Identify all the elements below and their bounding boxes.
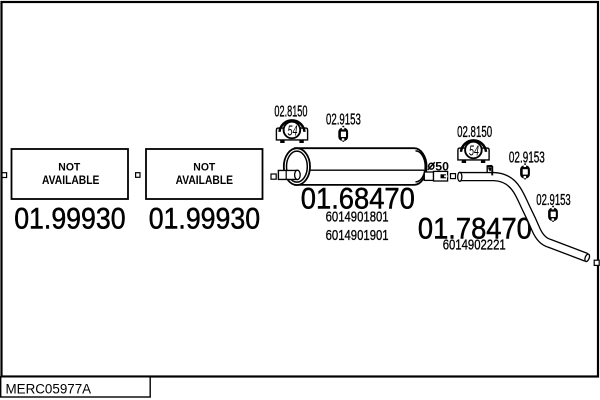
svg-text:50: 50 <box>435 159 449 173</box>
svg-text:6014901901: 6014901901 <box>326 228 389 244</box>
svg-text:54: 54 <box>288 123 298 140</box>
svg-text:01.99930: 01.99930 <box>14 202 125 235</box>
svg-text:54: 54 <box>469 143 479 160</box>
svg-text:02.8150: 02.8150 <box>457 124 492 141</box>
svg-text:NOT: NOT <box>58 162 80 174</box>
svg-text:02.8150: 02.8150 <box>274 103 307 120</box>
svg-text:NOT: NOT <box>193 162 215 174</box>
svg-text:AVAILABLE: AVAILABLE <box>176 174 234 187</box>
svg-text:6014902221: 6014902221 <box>443 238 506 254</box>
svg-text:MERC05977A: MERC05977A <box>6 381 92 396</box>
svg-text:02.9153: 02.9153 <box>509 149 545 166</box>
svg-text:01.99930: 01.99930 <box>149 202 260 235</box>
svg-text:AVAILABLE: AVAILABLE <box>42 174 100 187</box>
svg-text:6014901801: 6014901801 <box>326 209 389 225</box>
